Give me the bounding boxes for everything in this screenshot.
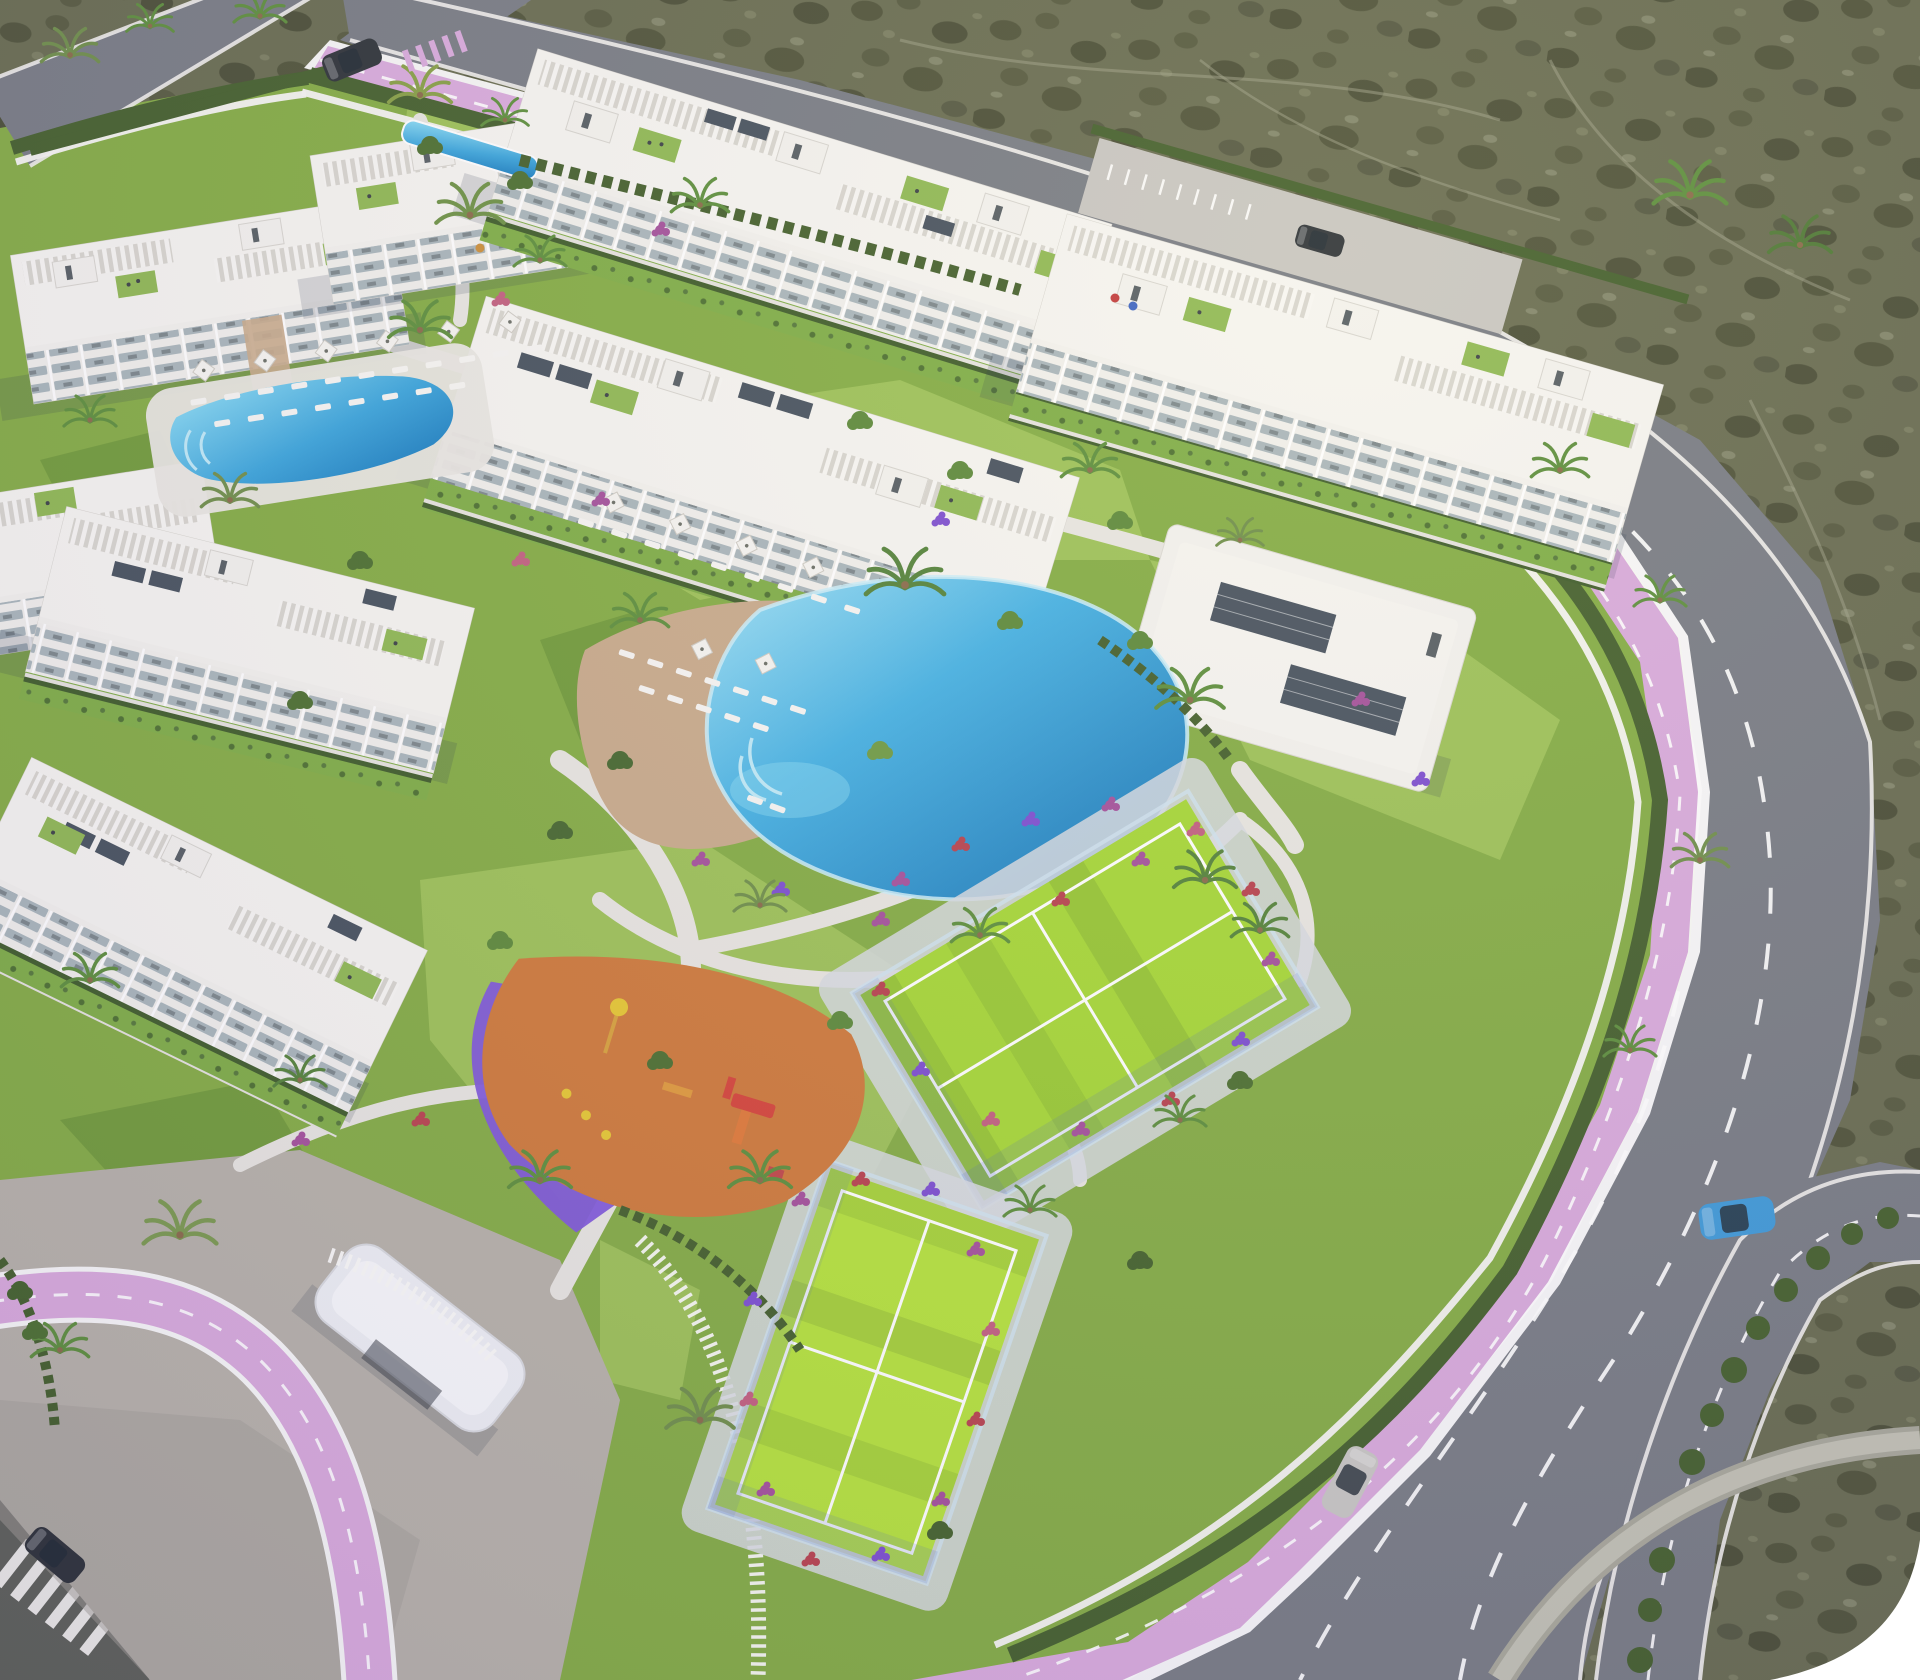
render-canvas [0, 0, 1920, 1680]
aerial-render [0, 0, 1920, 1680]
ambient-light-overlay [0, 0, 1920, 1680]
